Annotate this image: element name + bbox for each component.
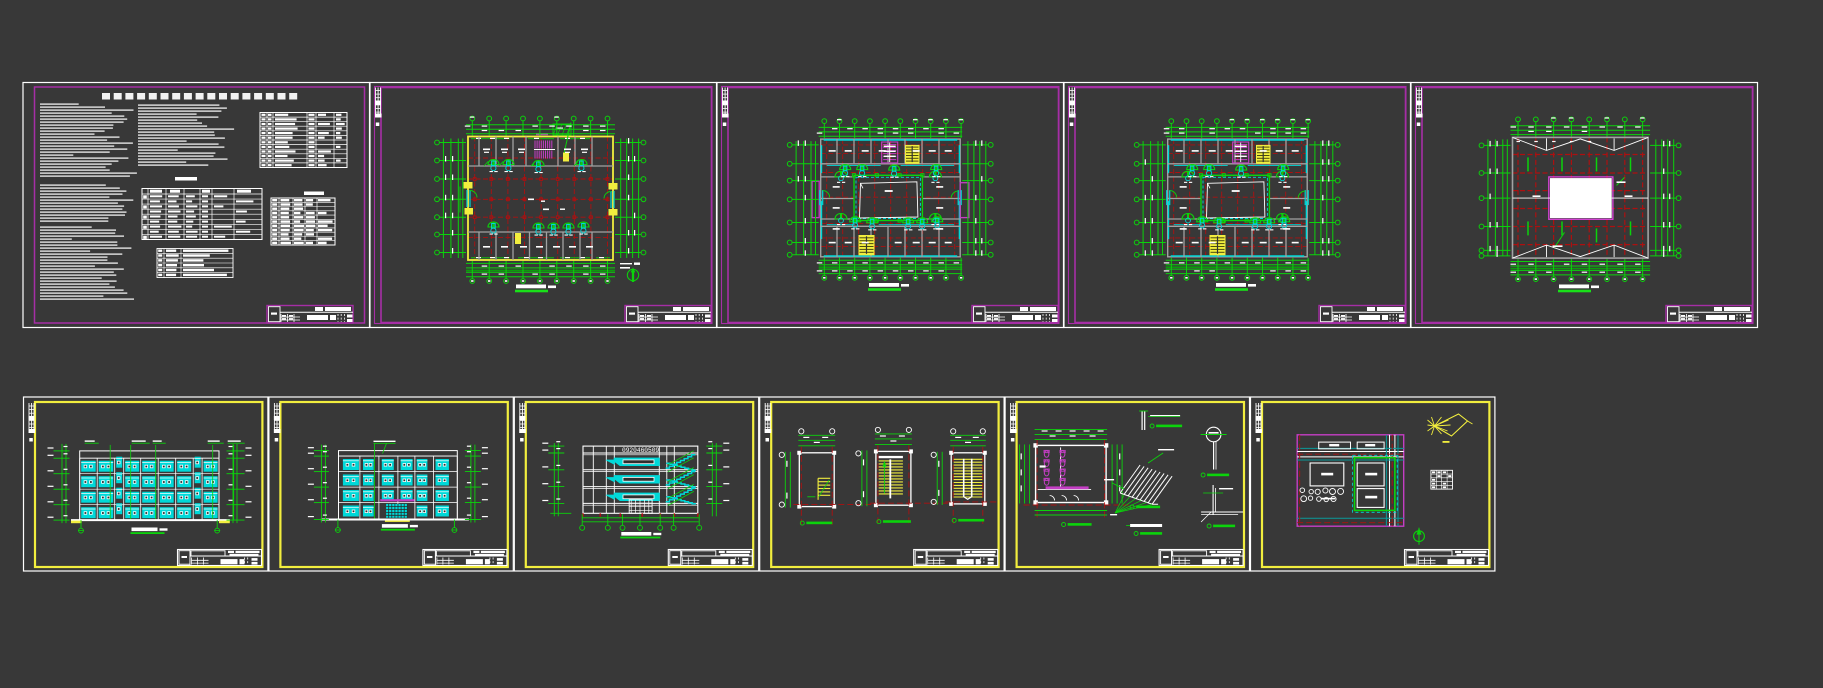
svg-text:0920460509: 0920460509 bbox=[622, 447, 659, 454]
